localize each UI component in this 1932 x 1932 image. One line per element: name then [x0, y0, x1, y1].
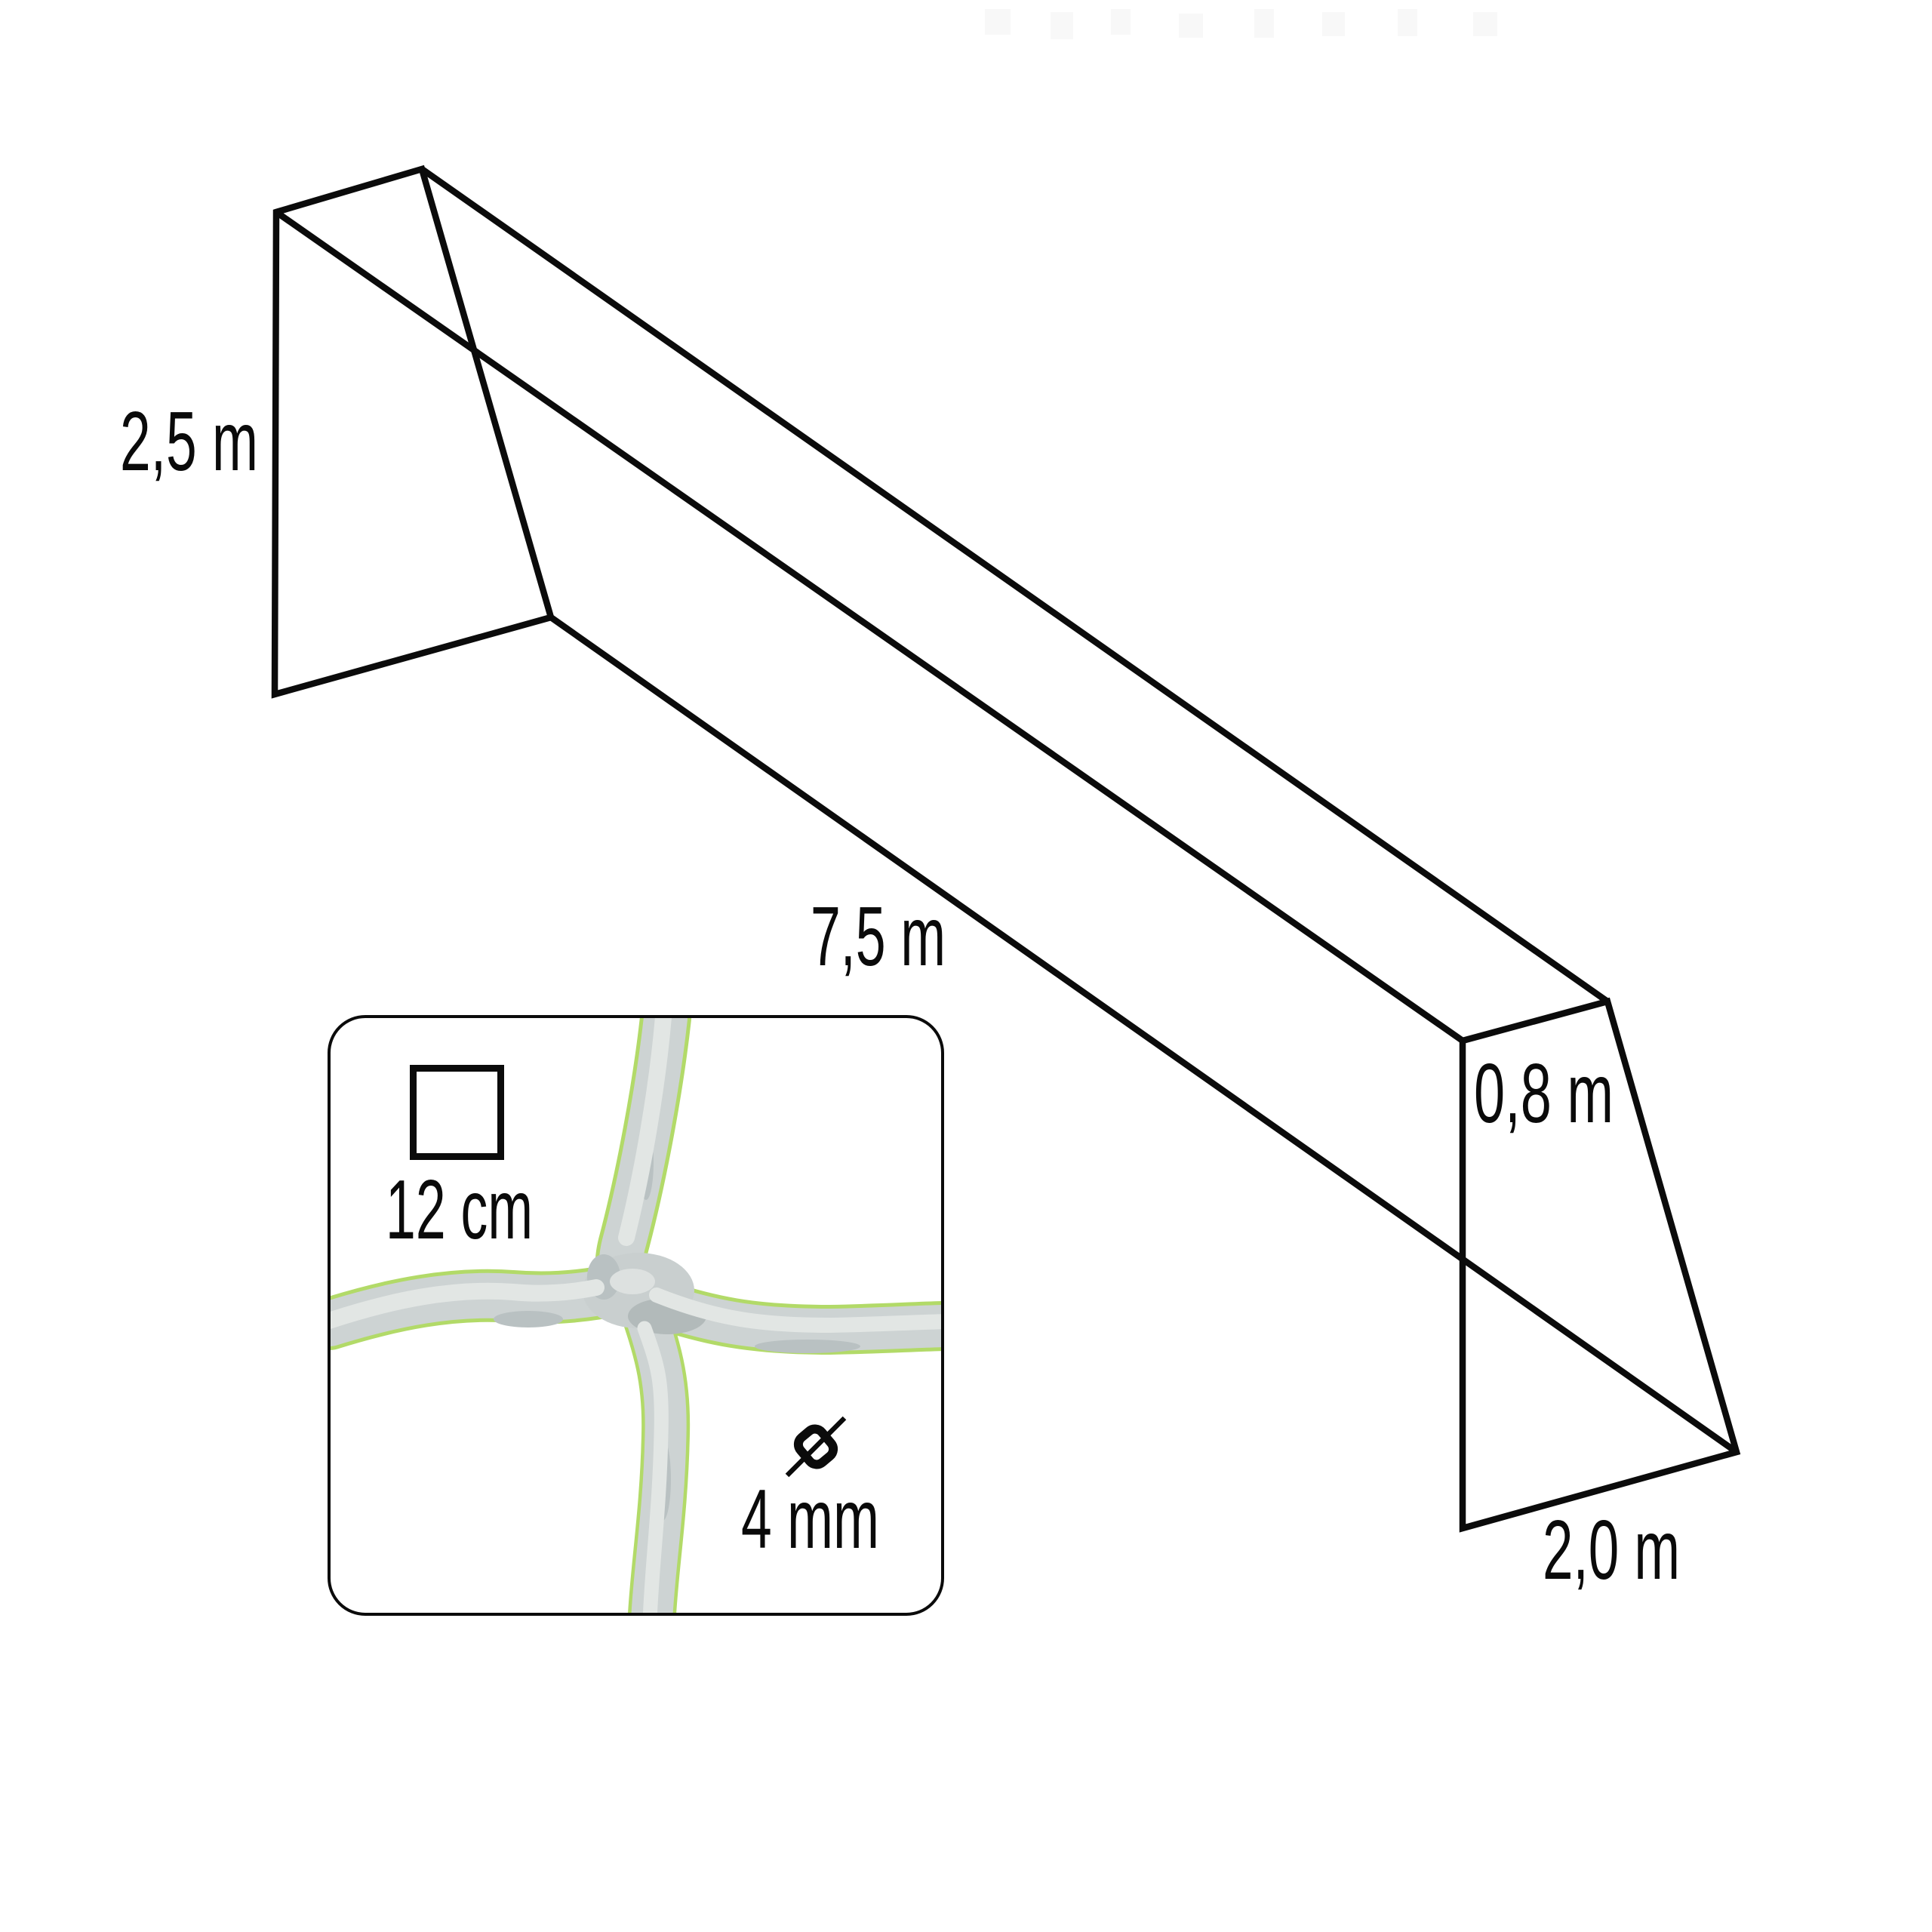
svg-text:12 cm: 12 cm: [386, 1163, 533, 1257]
svg-text:2,5 m: 2,5 m: [120, 395, 258, 488]
svg-text:2,0 m: 2,0 m: [1543, 1503, 1680, 1597]
svg-text:7,5 m: 7,5 m: [811, 890, 946, 983]
svg-text:4 mm: 4 mm: [741, 1472, 879, 1566]
svg-text:0,8 m: 0,8 m: [1474, 1047, 1614, 1140]
